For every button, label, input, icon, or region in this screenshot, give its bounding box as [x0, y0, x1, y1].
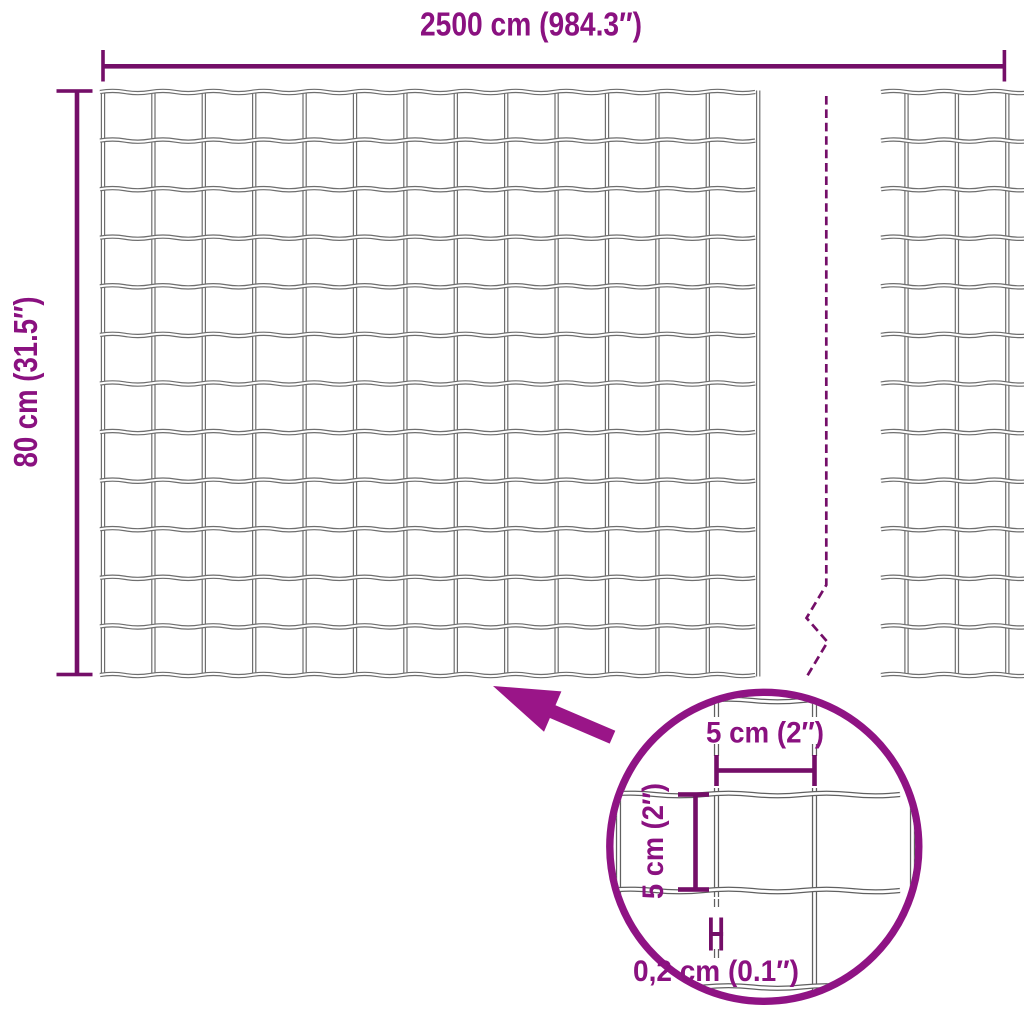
- svg-text:80 cm (31.5″): 80 cm (31.5″): [8, 297, 45, 468]
- svg-text:2500 cm (984.3″): 2500 cm (984.3″): [420, 7, 642, 44]
- svg-text:5 cm (2″): 5 cm (2″): [637, 783, 670, 899]
- svg-text:5 cm (2″): 5 cm (2″): [706, 717, 824, 750]
- svg-text:0,2 cm (0.1″): 0,2 cm (0.1″): [633, 955, 799, 988]
